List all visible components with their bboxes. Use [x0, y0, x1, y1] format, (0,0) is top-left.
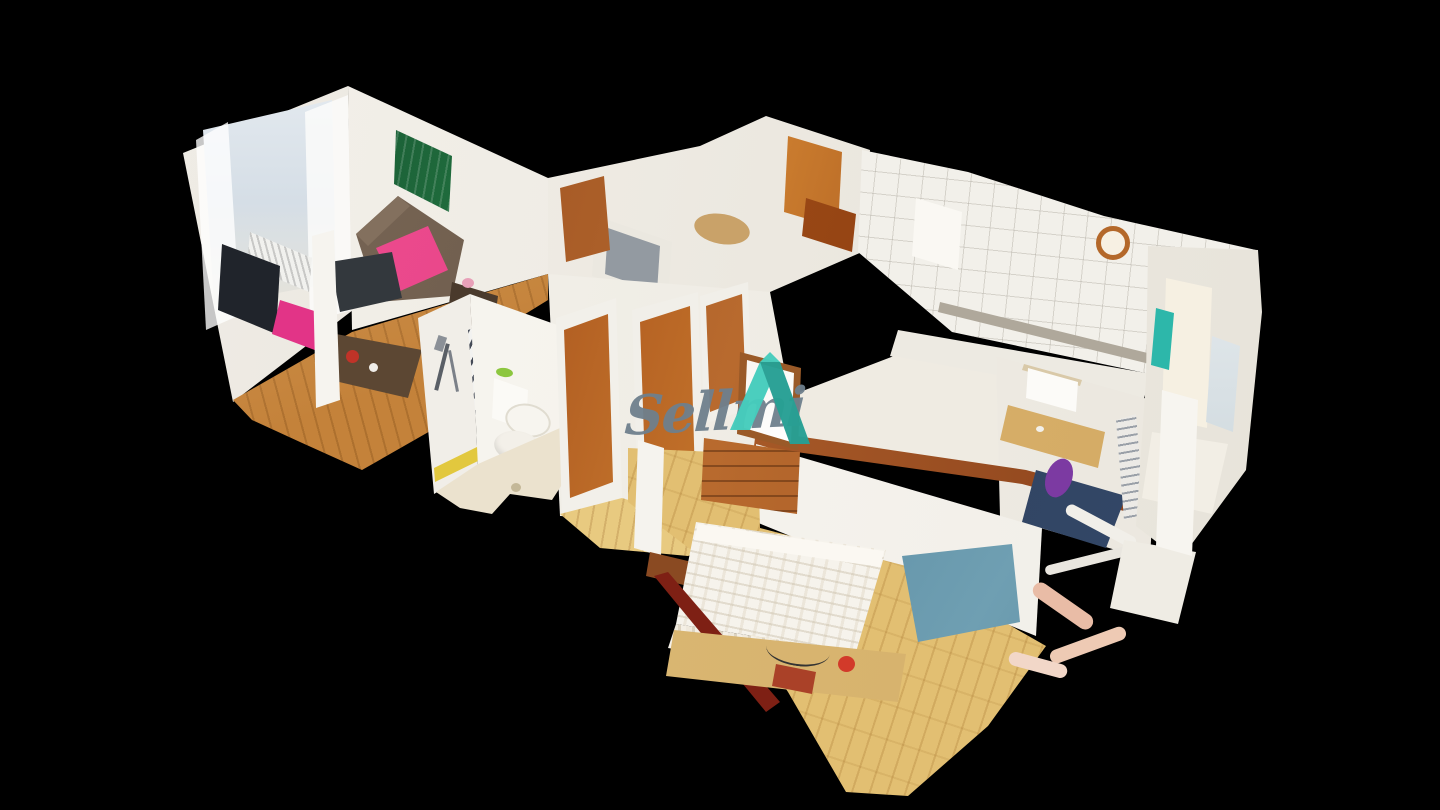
sellmi-house-icon — [722, 350, 814, 454]
white-rack-bar-2 — [1044, 546, 1128, 576]
flower-vase — [462, 278, 474, 288]
salmon-cloth-2 — [1048, 625, 1128, 666]
computer-mouse — [1036, 426, 1044, 432]
salmon-cloth-1 — [1030, 579, 1097, 632]
dollhouse-3d-view[interactable]: Sellmi — [0, 0, 1440, 810]
red-bowl — [346, 350, 359, 363]
floor-drain — [511, 483, 521, 492]
white-cup — [369, 363, 378, 372]
wall-clock — [1096, 226, 1130, 260]
red-dish — [838, 656, 855, 672]
